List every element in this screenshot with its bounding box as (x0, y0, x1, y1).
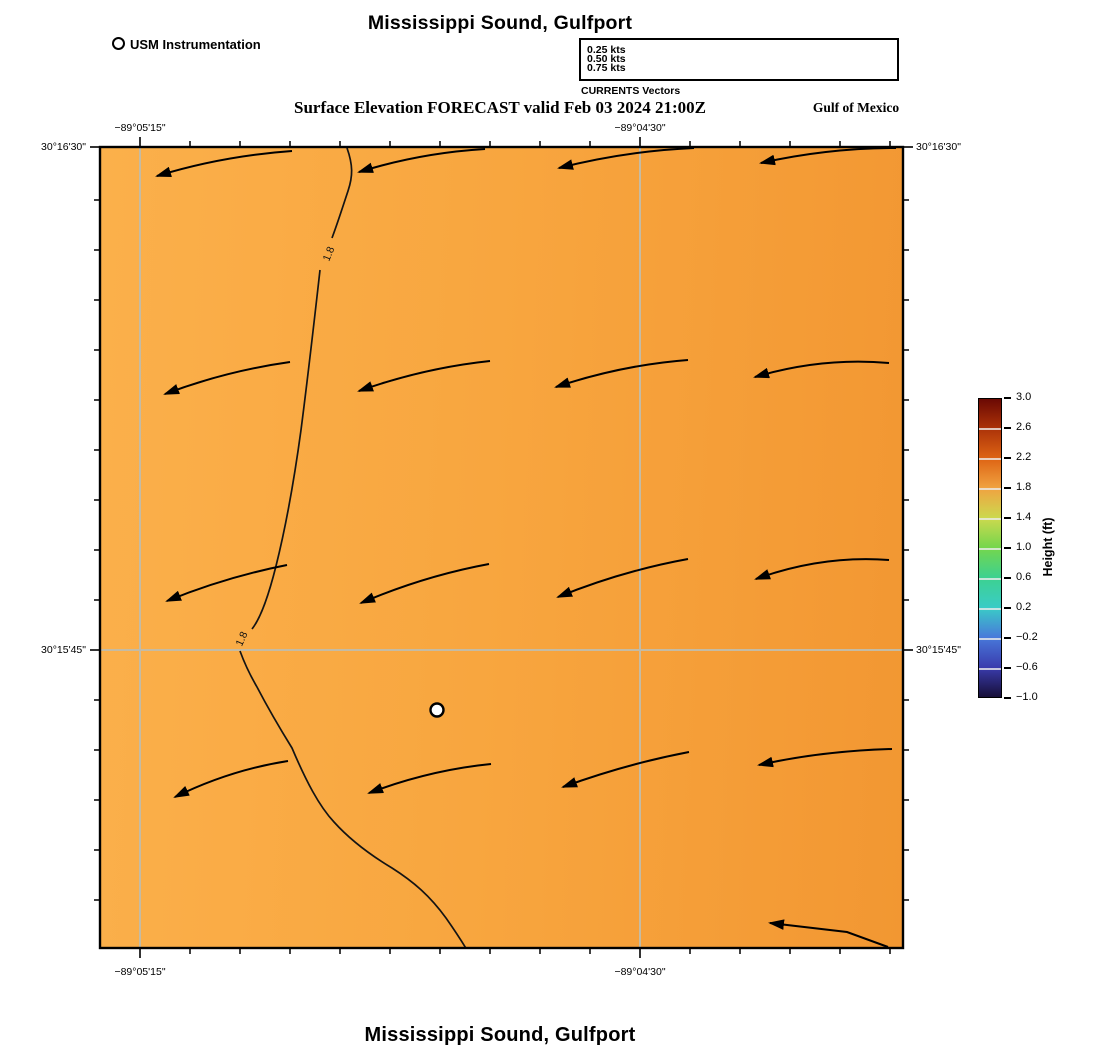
current-vector-arrow (359, 361, 490, 391)
footer-title: Mississippi Sound, Gulfport (300, 1024, 700, 1047)
colorbar-separator (979, 428, 1001, 429)
colorbar-separator (979, 608, 1001, 609)
current-vector-arrow (369, 764, 491, 793)
colorbar-tick (1004, 457, 1011, 459)
colorbar-tick (1004, 517, 1011, 519)
current-vector-arrow (558, 559, 688, 597)
current-vector-arrow (361, 564, 489, 603)
colorbar-tick (1004, 577, 1011, 579)
colorbar-separator (979, 488, 1001, 489)
forecast-subtitle: Surface Elevation FORECAST valid Feb 03 … (250, 98, 750, 118)
colorbar-separator (979, 638, 1001, 639)
colorbar-tick (1004, 607, 1011, 609)
station-legend-label: USM Instrumentation (130, 37, 261, 52)
colorbar-tick-label: −0.2 (1016, 631, 1038, 643)
page-title: Mississippi Sound, Gulfport (300, 12, 700, 35)
colorbar-separator (979, 668, 1001, 669)
forecast-plot-page: 1.81.8 Mississippi Sound, Gulfport USM I… (0, 0, 1100, 1050)
colorbar-separator (979, 458, 1001, 459)
colorbar-tick-label: 2.6 (1016, 421, 1031, 433)
colorbar-tick-label: −0.6 (1016, 661, 1038, 673)
current-vector-arrow (770, 923, 888, 947)
lat-label-left-1: 30°16'30" (26, 141, 86, 153)
current-vector-arrow (559, 148, 694, 168)
region-label: Gulf of Mexico (806, 100, 906, 116)
current-vector-arrow (167, 565, 287, 601)
colorbar-tick-label: 1.4 (1016, 511, 1031, 523)
current-vector-arrow (556, 360, 688, 387)
colorbar-tick-label: 0.2 (1016, 601, 1031, 613)
colorbar-tick (1004, 547, 1011, 549)
lon-label-bottom-2: −89°04'30" (614, 966, 665, 978)
lon-label-top-2: −89°04'30" (614, 122, 665, 134)
current-vector-arrow (175, 761, 288, 797)
current-vector-arrow (359, 149, 485, 172)
station-marker (431, 704, 444, 717)
colorbar-separator (979, 548, 1001, 549)
colorbar-tick-label: 2.2 (1016, 451, 1031, 463)
colorbar-tick (1004, 487, 1011, 489)
lon-label-top-1: −89°05'15" (114, 122, 165, 134)
plot-canvas: 1.81.8 (0, 0, 1100, 1050)
current-vector-arrow (756, 559, 889, 579)
current-vector-arrow (759, 749, 892, 765)
colorbar-tick-label: 3.0 (1016, 391, 1031, 403)
lat-label-right-1: 30°16'30" (916, 141, 961, 153)
colorbar-tick-label: 0.6 (1016, 571, 1031, 583)
colorbar-axis-title: Height (ft) (1041, 487, 1055, 607)
colorbar-separator (979, 578, 1001, 579)
colorbar-tick (1004, 667, 1011, 669)
contour-value-label: 1.8 (321, 245, 338, 263)
lat-label-right-2: 30°15'45" (916, 644, 961, 656)
current-vector-arrow (755, 362, 889, 377)
lat-label-left-2: 30°15'45" (26, 644, 86, 656)
height-colorbar (978, 398, 1002, 698)
current-vector-arrow (761, 148, 896, 163)
elevation-contour (240, 651, 467, 950)
colorbar-tick (1004, 397, 1011, 399)
map-border (100, 147, 903, 948)
colorbar-tick-label: 1.0 (1016, 541, 1031, 553)
current-vector-arrow (157, 151, 292, 176)
current-vector-arrow (165, 362, 290, 394)
vector-scale-legend: 0.25 kts 0.50 kts 0.75 kts (579, 38, 899, 81)
colorbar-tick (1004, 427, 1011, 429)
contour-value-label: 1.8 (234, 630, 251, 648)
station-legend-icon (112, 37, 125, 50)
current-vector-arrow (563, 752, 689, 787)
colorbar-tick (1004, 697, 1011, 699)
elevation-contour (332, 148, 352, 238)
vector-legend-caption: CURRENTS Vectors (581, 85, 680, 97)
colorbar-separator (979, 518, 1001, 519)
colorbar-tick-label: −1.0 (1016, 691, 1038, 703)
colorbar-tick (1004, 637, 1011, 639)
colorbar-tick-label: 1.8 (1016, 481, 1031, 493)
elevation-contour (252, 270, 320, 629)
vector-scale-label-075: 0.75 kts (587, 63, 626, 73)
lon-label-bottom-1: −89°05'15" (114, 966, 165, 978)
